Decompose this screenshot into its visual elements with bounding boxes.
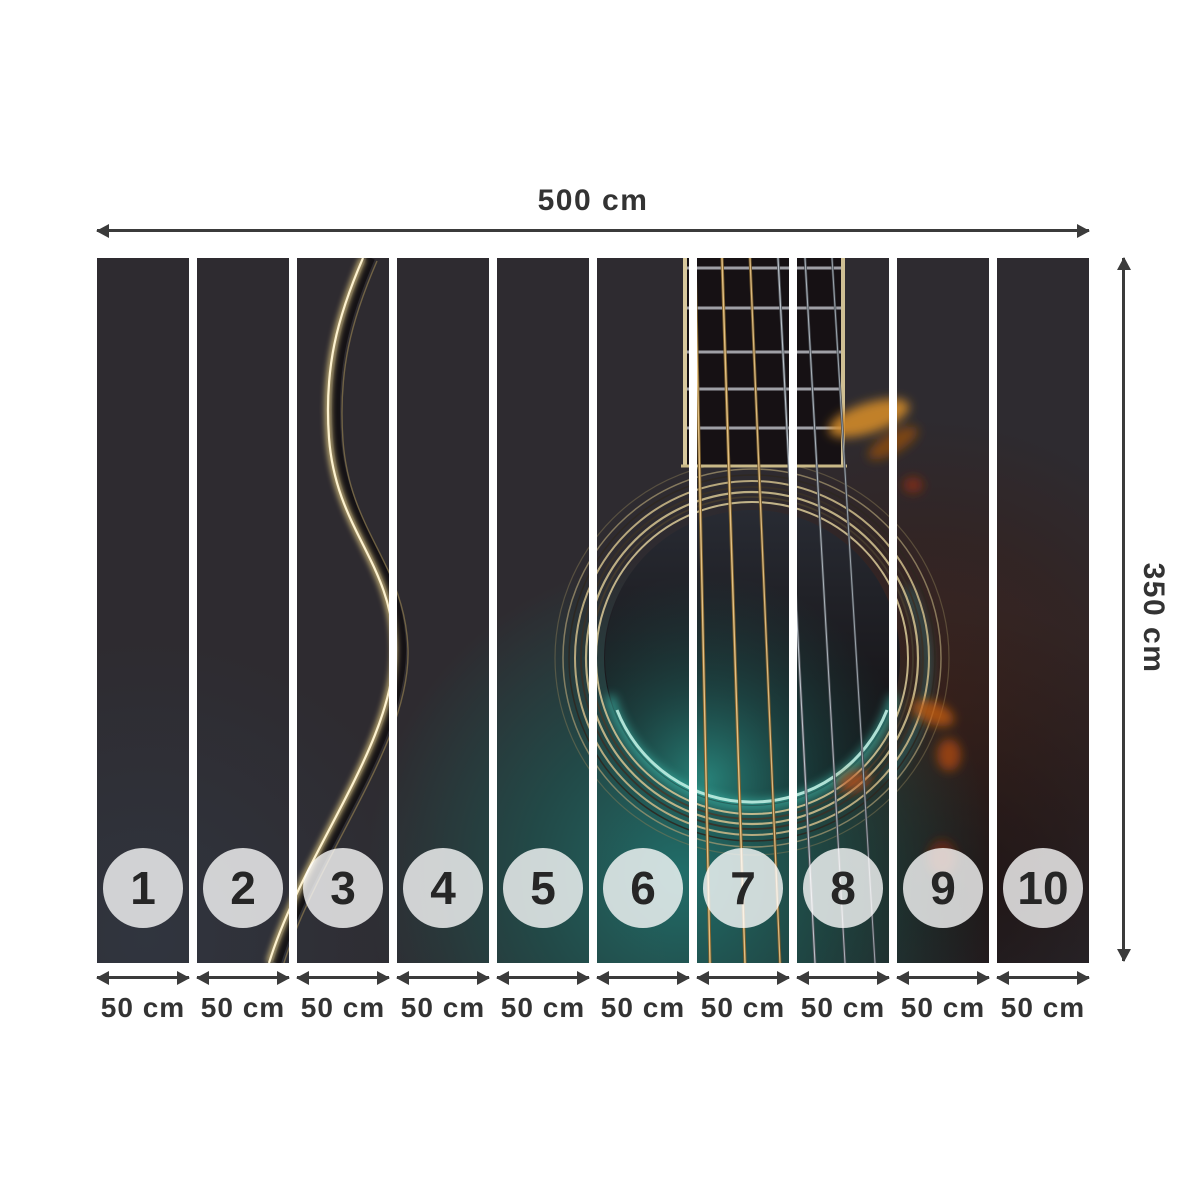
panel-width-arrow-icon [197, 976, 289, 979]
panel-width-label: 50 cm [983, 992, 1103, 1024]
panel-width-dimensions: 50 cm 50 cm 50 cm 50 cm 50 cm 50 cm 50 c… [97, 968, 1089, 1038]
panel-gap [789, 258, 797, 963]
panel-gap [889, 258, 897, 963]
total-width-label: 500 cm [97, 184, 1089, 218]
width-arrow-icon [97, 229, 1089, 232]
wallpaper-size-mockup: 500 cm 350 cm [0, 0, 1200, 1200]
panel-number: 10 [1017, 861, 1068, 915]
panel-number: 5 [530, 861, 556, 915]
panel-width-arrow-icon [997, 976, 1089, 979]
panel-number-badge: 7 [703, 848, 783, 928]
panel-number: 4 [430, 861, 456, 915]
fretboard [681, 258, 847, 466]
panel-number-badge: 4 [403, 848, 483, 928]
panel-number-badge: 2 [203, 848, 283, 928]
panel-gap [389, 258, 397, 963]
panel-gap [989, 258, 997, 963]
panel-number-badge: 9 [903, 848, 983, 928]
panel-gap [189, 258, 197, 963]
panel-number: 1 [130, 861, 156, 915]
panel-width-arrow-icon [97, 976, 189, 979]
panel-width-arrow-icon [797, 976, 889, 979]
panel-width-arrow-icon [697, 976, 789, 979]
panel-number-badge: 8 [803, 848, 883, 928]
panel-width-arrow-icon [497, 976, 589, 979]
panel-number: 6 [630, 861, 656, 915]
panel-gap [289, 258, 297, 963]
panel-gap [689, 258, 697, 963]
panel-number-badge: 1 [103, 848, 183, 928]
panel-number: 9 [930, 861, 956, 915]
panel-width-arrow-icon [397, 976, 489, 979]
panel-number: 8 [830, 861, 856, 915]
panel-gap [589, 258, 597, 963]
panel-width-arrow-icon [297, 976, 389, 979]
panel-width-arrow-icon [897, 976, 989, 979]
panel-number-badge: 10 [1003, 848, 1083, 928]
total-height-label: 350 cm [1136, 558, 1170, 678]
panel-number-badge: 6 [603, 848, 683, 928]
height-arrow-icon [1122, 258, 1125, 961]
panel-number: 7 [730, 861, 756, 915]
mural-preview: 1 2 3 4 5 6 7 8 9 10 [97, 258, 1089, 963]
panel-width-arrow-icon [597, 976, 689, 979]
panel-number: 3 [330, 861, 356, 915]
panel-number-badge: 3 [303, 848, 383, 928]
panel-number: 2 [230, 861, 256, 915]
panel-gap [489, 258, 497, 963]
panel-number-badge: 5 [503, 848, 583, 928]
